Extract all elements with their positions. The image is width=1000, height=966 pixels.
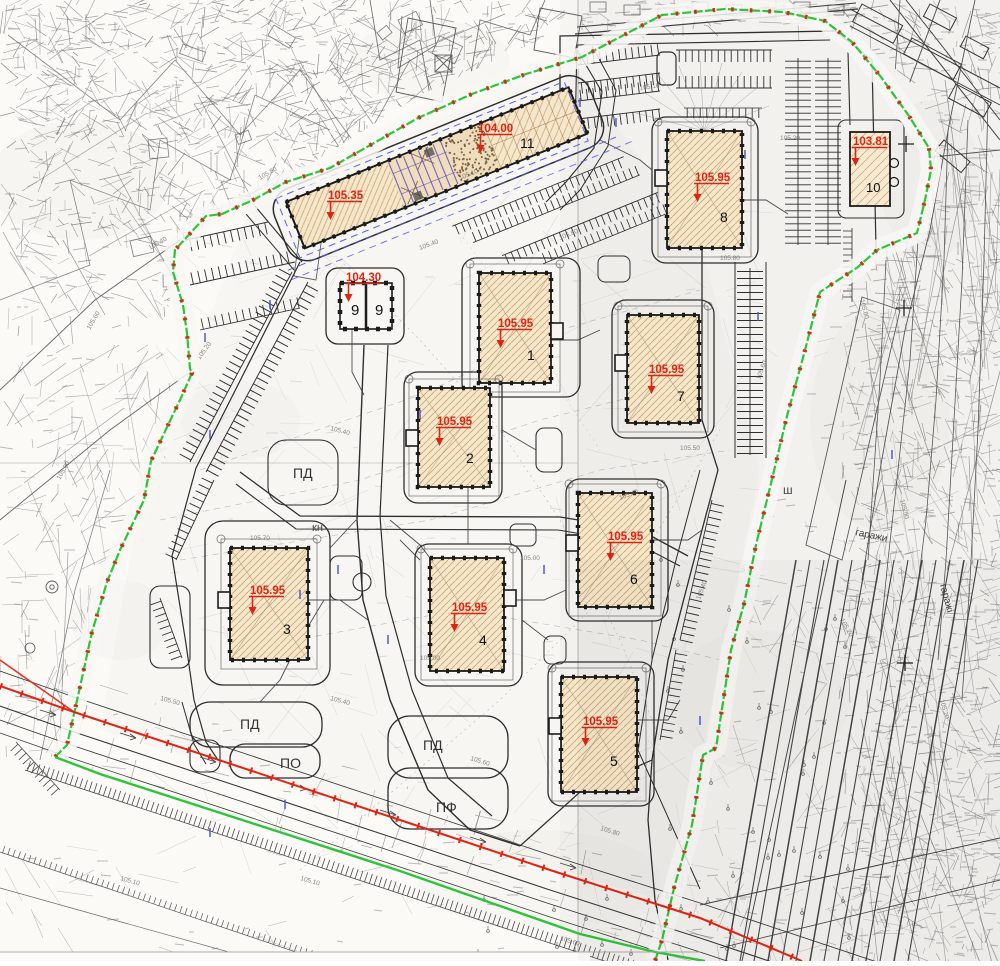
svg-text:105.95: 105.95 [695, 172, 731, 184]
svg-text:105.95: 105.95 [437, 416, 473, 428]
svg-text:1: 1 [527, 347, 535, 363]
svg-text:2: 2 [466, 450, 474, 466]
svg-text:8: 8 [720, 209, 728, 225]
svg-text:кн: кн [312, 522, 323, 534]
svg-text:ш: ш [783, 483, 793, 497]
svg-text:105.50: 105.50 [680, 445, 700, 452]
svg-text:4: 4 [479, 632, 487, 648]
svg-text:10: 10 [866, 180, 880, 195]
svg-text:105.95: 105.95 [498, 318, 534, 330]
svg-text:104.00: 104.00 [478, 123, 513, 135]
svg-text:104.30: 104.30 [346, 272, 381, 284]
svg-text:105.35: 105.35 [328, 190, 364, 202]
svg-text:105.95: 105.95 [649, 364, 685, 376]
svg-text:11: 11 [520, 135, 535, 151]
svg-text:105.20: 105.20 [780, 135, 800, 142]
svg-text:103.81: 103.81 [853, 136, 889, 148]
svg-text:ПФ: ПФ [436, 799, 457, 815]
svg-text:9: 9 [375, 302, 383, 319]
svg-text:3: 3 [283, 621, 291, 637]
svg-text:105.95: 105.95 [250, 585, 286, 597]
svg-text:105.70: 105.70 [250, 535, 270, 542]
svg-text:105.80: 105.80 [720, 255, 740, 262]
svg-text:ПД: ПД [240, 716, 260, 732]
svg-text:9: 9 [351, 302, 359, 319]
svg-text:105.95: 105.95 [608, 531, 644, 543]
svg-text:7: 7 [677, 388, 685, 404]
svg-text:ПД: ПД [423, 737, 443, 753]
svg-text:105.00: 105.00 [420, 655, 440, 662]
svg-text:ПД: ПД [293, 465, 313, 481]
svg-text:105.00: 105.00 [520, 555, 540, 562]
svg-text:ПО: ПО [280, 755, 301, 771]
svg-text:105.95: 105.95 [452, 602, 488, 614]
